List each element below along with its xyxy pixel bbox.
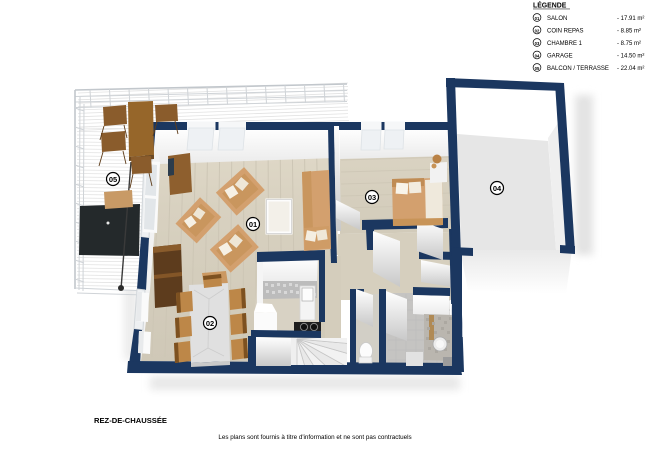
svg-text:05: 05 xyxy=(535,66,540,71)
svg-text:05: 05 xyxy=(109,175,117,184)
svg-text:04: 04 xyxy=(493,184,502,193)
svg-text:COIN REPAS: COIN REPAS xyxy=(547,29,584,35)
svg-text:03: 03 xyxy=(535,41,540,46)
svg-text:01: 01 xyxy=(249,220,257,229)
svg-text:Les plans sont fournis à titre: Les plans sont fournis à titre d'informa… xyxy=(218,434,411,441)
svg-text:BALCON / TERRASSE: BALCON / TERRASSE xyxy=(547,66,609,72)
svg-text:- 8.85 m²: - 8.85 m² xyxy=(617,29,641,35)
svg-text:LÉGENDE: LÉGENDE xyxy=(533,1,567,10)
svg-text:03: 03 xyxy=(368,193,376,202)
svg-text:- 22.04 m²: - 22.04 m² xyxy=(617,66,644,72)
svg-text:- 17.91 m²: - 17.91 m² xyxy=(617,16,644,22)
svg-text:01: 01 xyxy=(535,16,540,21)
svg-text:02: 02 xyxy=(535,29,540,34)
svg-text:- 8.75 m²: - 8.75 m² xyxy=(617,41,641,47)
svg-text:- 14.50 m²: - 14.50 m² xyxy=(617,54,644,60)
svg-text:REZ-DE-CHAUSSÉE: REZ-DE-CHAUSSÉE xyxy=(94,416,167,425)
svg-text:SALON: SALON xyxy=(547,16,567,22)
svg-text:04: 04 xyxy=(535,54,540,59)
svg-text:GARAGE: GARAGE xyxy=(547,54,573,60)
svg-text:CHAMBRE 1: CHAMBRE 1 xyxy=(547,41,583,47)
svg-text:02: 02 xyxy=(206,319,214,328)
